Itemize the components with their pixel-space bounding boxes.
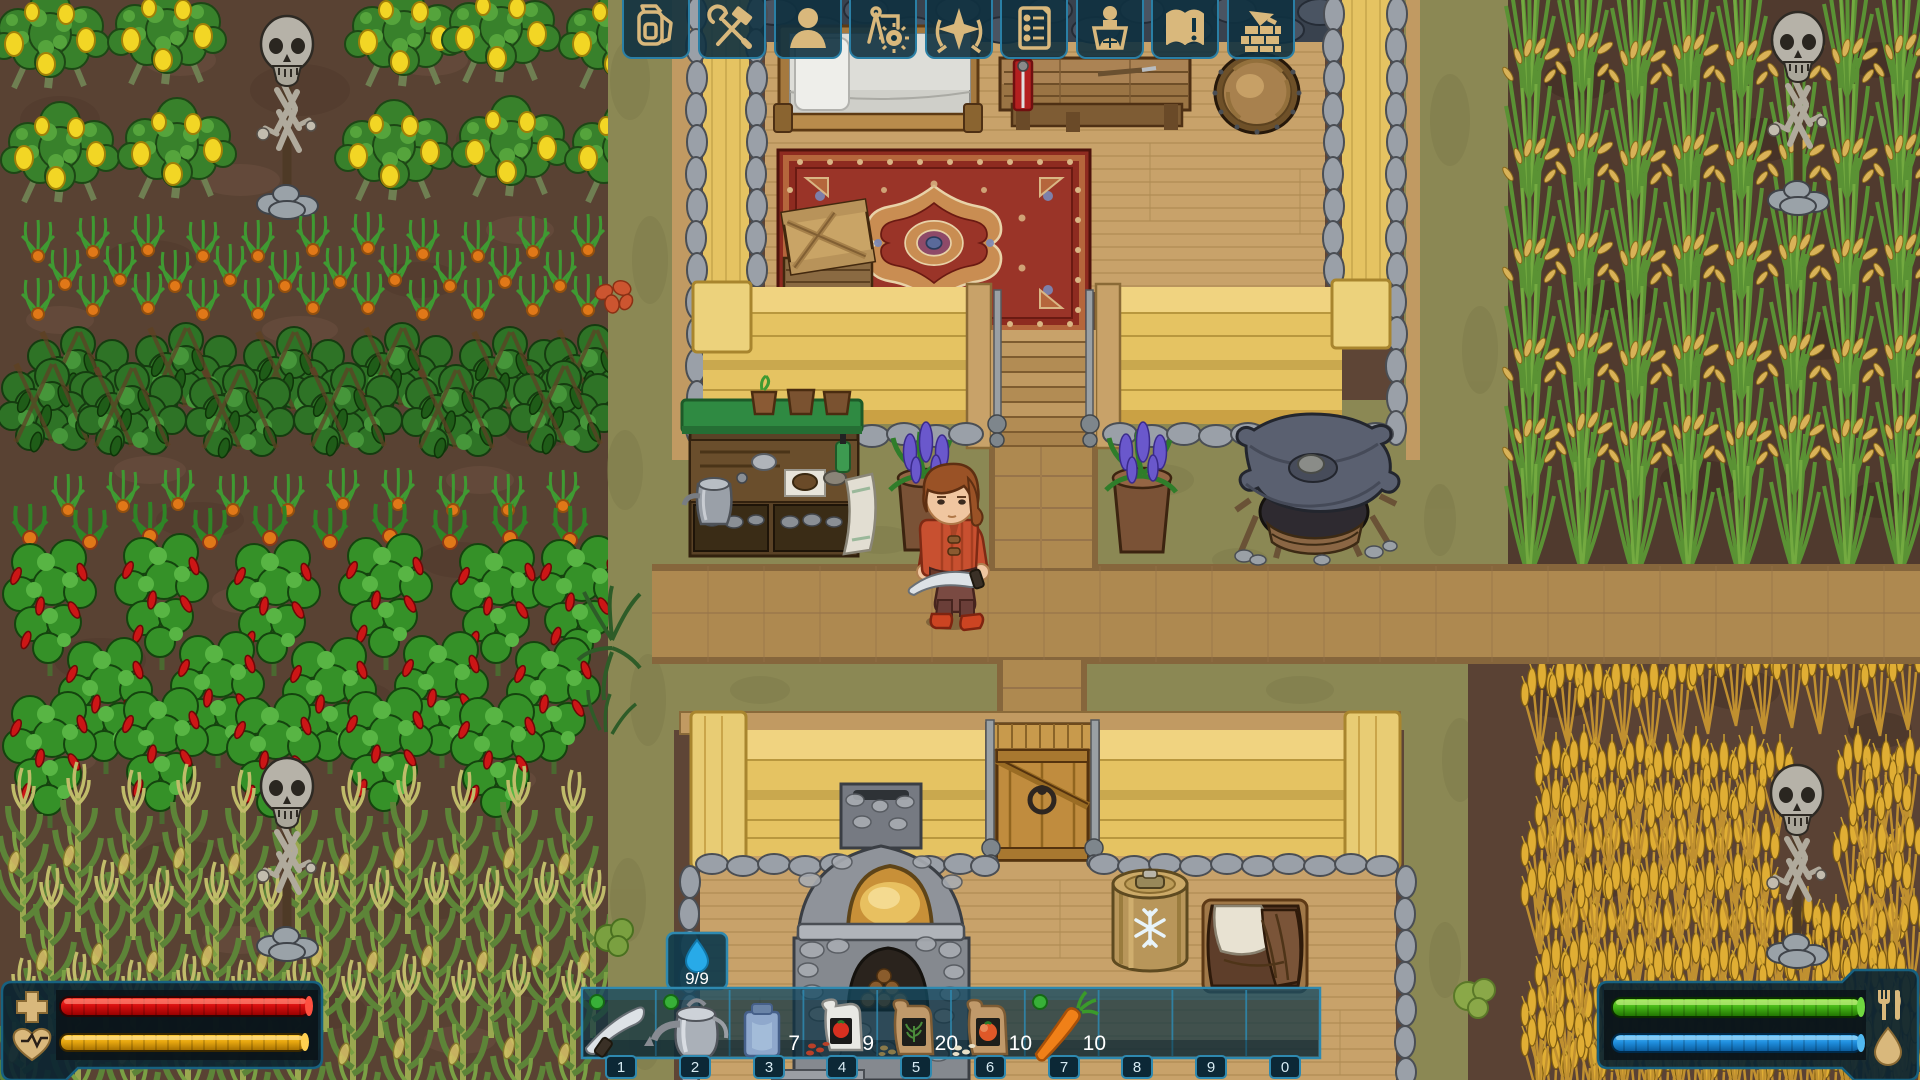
svg-text:7: 7 — [1060, 1059, 1068, 1076]
svg-text:6: 6 — [986, 1059, 994, 1076]
svg-text:5: 5 — [912, 1059, 920, 1076]
svg-text:3: 3 — [765, 1059, 773, 1076]
svg-text:0: 0 — [1281, 1059, 1289, 1076]
svg-text:10: 10 — [1009, 1032, 1032, 1055]
svg-text:4: 4 — [838, 1059, 846, 1076]
svg-text:9/9: 9/9 — [685, 969, 709, 988]
svg-text:9: 9 — [1207, 1059, 1215, 1076]
svg-text:10: 10 — [1083, 1032, 1106, 1055]
svg-text:9: 9 — [862, 1032, 874, 1055]
svg-text:7: 7 — [788, 1032, 800, 1055]
svg-text:8: 8 — [1133, 1059, 1141, 1076]
svg-text:1: 1 — [617, 1059, 625, 1076]
svg-text:2: 2 — [691, 1059, 699, 1076]
svg-text:20: 20 — [935, 1032, 958, 1055]
